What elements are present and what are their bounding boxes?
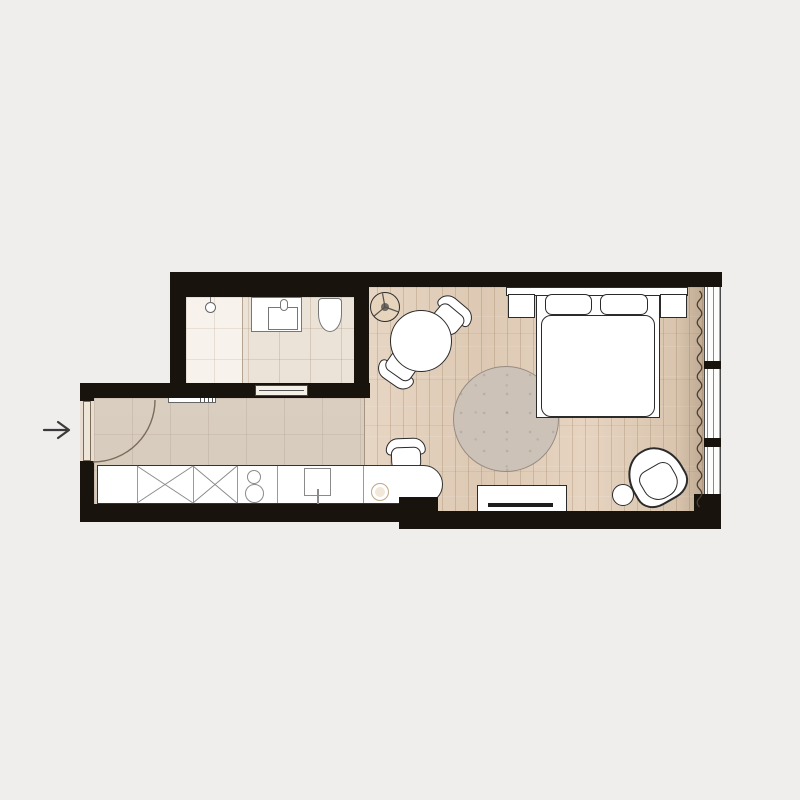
bathroom-sliding-door-track bbox=[259, 390, 304, 391]
wall-bathroom-left bbox=[170, 272, 186, 398]
wall-bottom-main bbox=[438, 511, 694, 529]
window-mullion bbox=[704, 361, 721, 369]
counter-divider bbox=[237, 466, 238, 503]
counter-bowl bbox=[371, 483, 389, 501]
wall-corner-bottom-right bbox=[694, 494, 721, 529]
window-mullion bbox=[704, 438, 721, 447]
nightstand-right bbox=[660, 294, 687, 318]
faucet-icon bbox=[280, 299, 288, 311]
bed-duvet bbox=[541, 315, 655, 417]
decor-side-table-center bbox=[381, 303, 389, 311]
counter-divider bbox=[363, 466, 364, 503]
round-dining-table bbox=[390, 310, 452, 372]
entry-door-leaf bbox=[83, 401, 91, 461]
window-wall bbox=[704, 287, 721, 494]
counter-divider bbox=[193, 466, 194, 503]
floor-divider-line bbox=[364, 398, 365, 465]
cooktop-burner-large bbox=[245, 484, 264, 503]
kitchen-counter bbox=[97, 465, 443, 504]
counter-divider bbox=[137, 466, 138, 503]
pillow bbox=[545, 294, 592, 315]
entrance-arrow-right-icon bbox=[44, 422, 69, 438]
wall-top-bathroom bbox=[170, 272, 369, 297]
pillow bbox=[600, 294, 648, 315]
nightstand-left bbox=[508, 294, 535, 318]
wall-hallway-top bbox=[80, 383, 370, 398]
entry-shelf-ticks bbox=[200, 398, 214, 402]
wall-bottom-kitchen bbox=[80, 504, 399, 522]
counter-divider bbox=[277, 466, 278, 503]
wall-bathroom-right bbox=[354, 272, 369, 398]
tv bbox=[488, 503, 553, 507]
wall-top-main bbox=[354, 272, 722, 287]
cooktop-burner-small bbox=[247, 470, 261, 484]
tv-console bbox=[477, 485, 567, 512]
floor-plan-canvas bbox=[0, 0, 800, 800]
wall-bottom-step bbox=[399, 497, 438, 529]
shower-head-icon bbox=[205, 302, 216, 313]
wall-left-upper bbox=[80, 383, 94, 401]
